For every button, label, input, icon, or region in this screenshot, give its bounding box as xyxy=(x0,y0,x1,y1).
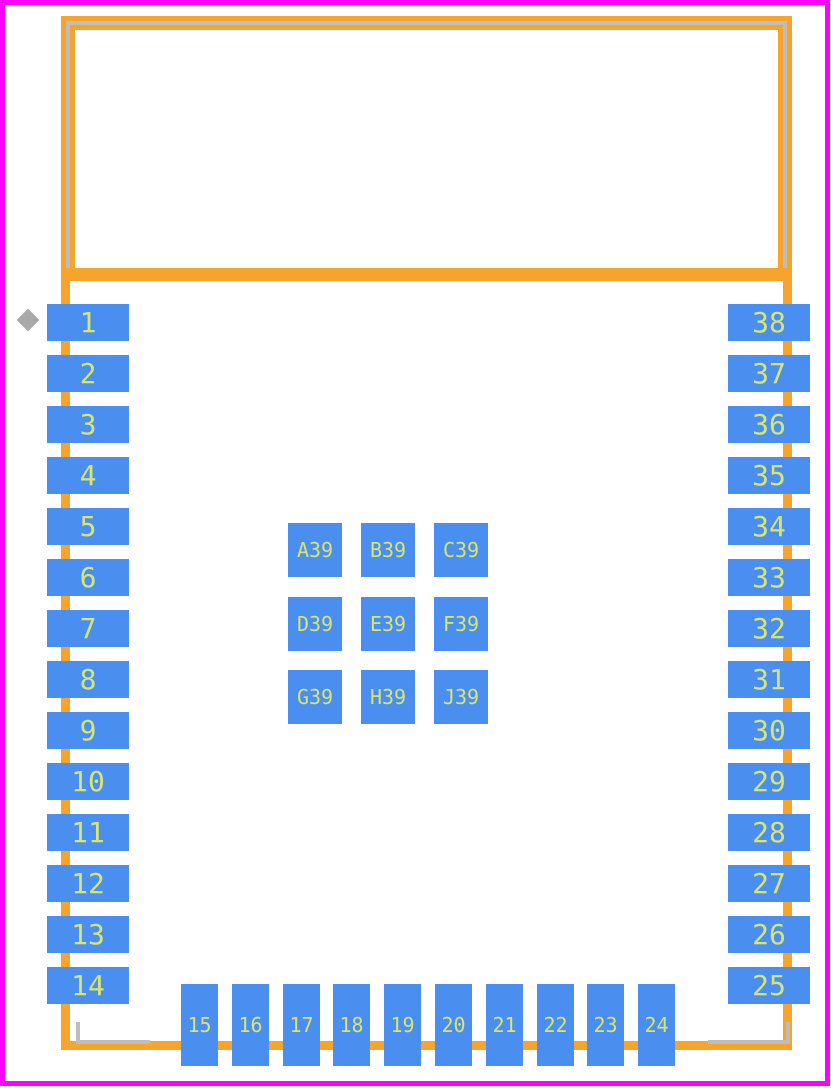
pad-label: B39 xyxy=(370,538,406,562)
pad-32: 32 xyxy=(728,610,810,647)
pad-38: 38 xyxy=(728,304,810,341)
pad-B39: B39 xyxy=(361,523,415,577)
pad-label: 24 xyxy=(644,1013,668,1037)
pad-28: 28 xyxy=(728,814,810,851)
pad-label: G39 xyxy=(297,685,333,709)
pad-1: 1 xyxy=(47,304,129,341)
footprint-canvas: 1234567891011121314383736353433323130292… xyxy=(0,0,831,1088)
pad-label: 36 xyxy=(752,408,786,441)
pad-15: 15 xyxy=(181,984,218,1066)
pad-label: 3 xyxy=(80,408,97,441)
pad-H39: H39 xyxy=(361,670,415,724)
pad-label: 23 xyxy=(593,1013,617,1037)
pad-G39: G39 xyxy=(288,670,342,724)
pad-5: 5 xyxy=(47,508,129,545)
antenna-outline xyxy=(70,25,783,280)
pad-10: 10 xyxy=(47,763,129,800)
pad-label: 27 xyxy=(752,867,786,900)
pad-A39: A39 xyxy=(288,523,342,577)
pad-label: 26 xyxy=(752,918,786,951)
pad-17: 17 xyxy=(283,984,320,1066)
pad-4: 4 xyxy=(47,457,129,494)
pad-34: 34 xyxy=(728,508,810,545)
pad-label: 20 xyxy=(441,1013,465,1037)
pad-label: 8 xyxy=(80,663,97,696)
pad-33: 33 xyxy=(728,559,810,596)
pad-label: 31 xyxy=(752,663,786,696)
pad-label: 9 xyxy=(80,714,97,747)
pad-16: 16 xyxy=(232,984,269,1066)
pad-label: 10 xyxy=(71,765,105,798)
pad-21: 21 xyxy=(486,984,523,1066)
pad-label: 29 xyxy=(752,765,786,798)
pad-29: 29 xyxy=(728,763,810,800)
pad-24: 24 xyxy=(638,984,675,1066)
pad-label: 35 xyxy=(752,459,786,492)
pad-19: 19 xyxy=(384,984,421,1066)
pad-label: 15 xyxy=(187,1013,211,1037)
pad-8: 8 xyxy=(47,661,129,698)
pad-30: 30 xyxy=(728,712,810,749)
pad-20: 20 xyxy=(435,984,472,1066)
pad-27: 27 xyxy=(728,865,810,902)
antenna-divider xyxy=(61,268,792,281)
pad-label: 17 xyxy=(289,1013,313,1037)
assembly-line-bottom-right-horizontal xyxy=(708,1040,790,1044)
pad-7: 7 xyxy=(47,610,129,647)
pad-26: 26 xyxy=(728,916,810,953)
pad-label: 12 xyxy=(71,867,105,900)
pad-label: 30 xyxy=(752,714,786,747)
pad-35: 35 xyxy=(728,457,810,494)
pad-37: 37 xyxy=(728,355,810,392)
pad-label: C39 xyxy=(443,538,479,562)
pad-label: 22 xyxy=(543,1013,567,1037)
pad-label: D39 xyxy=(297,612,333,636)
pad-3: 3 xyxy=(47,406,129,443)
pad-D39: D39 xyxy=(288,597,342,651)
pad-36: 36 xyxy=(728,406,810,443)
pad-label: 38 xyxy=(752,306,786,339)
pad-22: 22 xyxy=(537,984,574,1066)
pad-F39: F39 xyxy=(434,597,488,651)
pad-C39: C39 xyxy=(434,523,488,577)
pad-label: E39 xyxy=(370,612,406,636)
pad-label: 1 xyxy=(80,306,97,339)
pad-11: 11 xyxy=(47,814,129,851)
pad-25: 25 xyxy=(728,967,810,1004)
pad-label: F39 xyxy=(443,612,479,636)
pad-label: 2 xyxy=(80,357,97,390)
pad-label: 32 xyxy=(752,612,786,645)
pad-label: 18 xyxy=(339,1013,363,1037)
pad-label: 16 xyxy=(238,1013,262,1037)
pad-label: 19 xyxy=(390,1013,414,1037)
pad-label: J39 xyxy=(443,685,479,709)
pad-label: A39 xyxy=(297,538,333,562)
pad-12: 12 xyxy=(47,865,129,902)
pad-23: 23 xyxy=(587,984,624,1066)
pad-J39: J39 xyxy=(434,670,488,724)
pad-14: 14 xyxy=(47,967,129,1004)
pad-label: 14 xyxy=(71,969,105,1002)
pad-31: 31 xyxy=(728,661,810,698)
pad-label: 21 xyxy=(492,1013,516,1037)
assembly-line-bottom-left-horizontal xyxy=(78,1040,150,1044)
pad-label: 11 xyxy=(71,816,105,849)
pad-2: 2 xyxy=(47,355,129,392)
pad-label: 13 xyxy=(71,918,105,951)
pad-label: 4 xyxy=(80,459,97,492)
pad-label: 37 xyxy=(752,357,786,390)
pad-E39: E39 xyxy=(361,597,415,651)
pad-18: 18 xyxy=(333,984,370,1066)
pad-9: 9 xyxy=(47,712,129,749)
pad-label: 28 xyxy=(752,816,786,849)
pad-6: 6 xyxy=(47,559,129,596)
pad-label: 5 xyxy=(80,510,97,543)
pad-label: 7 xyxy=(80,612,97,645)
pad-13: 13 xyxy=(47,916,129,953)
pad-label: 25 xyxy=(752,969,786,1002)
pad-label: 6 xyxy=(80,561,97,594)
pad-label: H39 xyxy=(370,685,406,709)
pad-label: 34 xyxy=(752,510,786,543)
pad-label: 33 xyxy=(752,561,786,594)
